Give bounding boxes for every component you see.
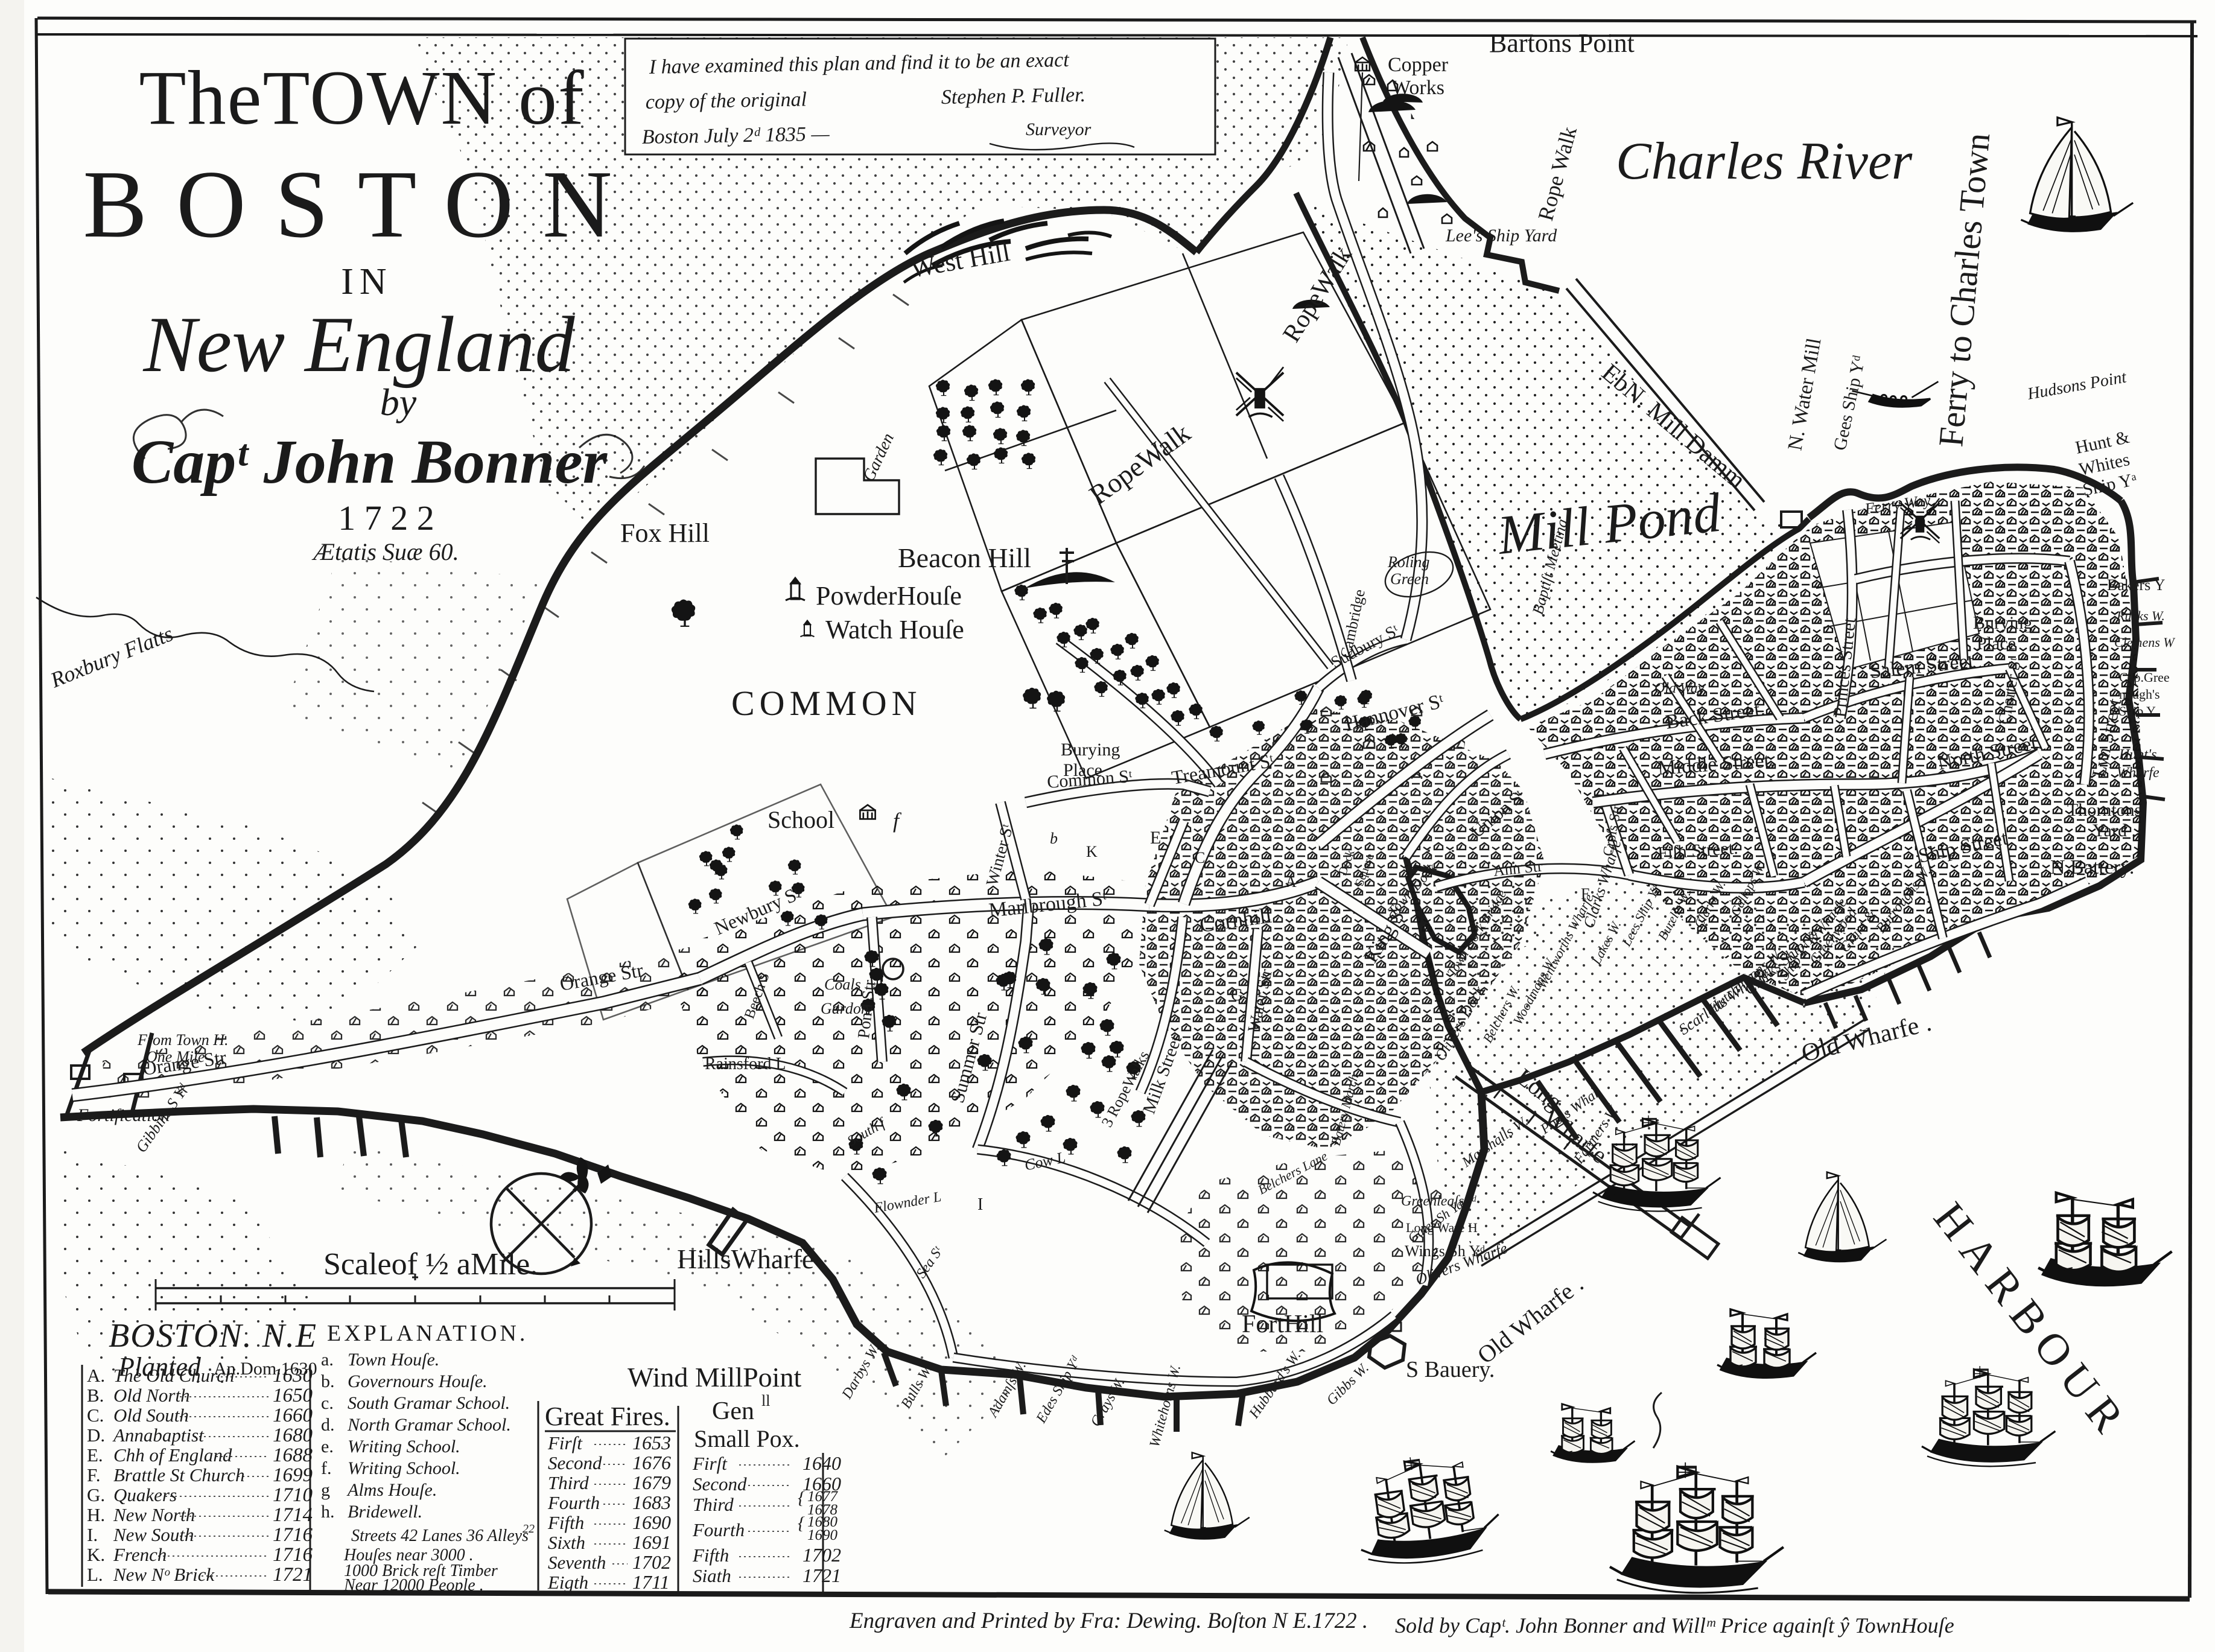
svg-text:The Old Church: The Old Church: [113, 1365, 234, 1386]
svg-text:D.: D.: [87, 1425, 105, 1446]
svg-text:Rucks W.: Rucks W.: [2116, 608, 2165, 623]
svg-text:New North: New North: [113, 1504, 195, 1525]
svg-text:1630: 1630: [273, 1365, 313, 1387]
svg-text:1683: 1683: [632, 1492, 671, 1513]
svg-text:Fourth: Fourth: [692, 1519, 745, 1540]
svg-text:Burying: Burying: [1973, 613, 2032, 633]
svg-text:FortHill: FortHill: [1242, 1310, 1323, 1338]
svg-text:Stephen P. Fuller.: Stephen P. Fuller.: [941, 84, 1085, 109]
svg-text:Alms Houſe.: Alms Houſe.: [346, 1480, 437, 1500]
svg-text:1714: 1714: [273, 1504, 313, 1526]
svg-text:Firſt: Firſt: [547, 1432, 583, 1453]
svg-text:e.: e.: [321, 1437, 334, 1457]
svg-text:Town Houſe.: Town Houſe.: [348, 1350, 439, 1370]
svg-text:COMMON: COMMON: [731, 684, 922, 723]
svg-text:1676: 1676: [632, 1452, 671, 1473]
svg-text:Brattle St Church: Brattle St Church: [113, 1464, 245, 1485]
svg-text:1680: 1680: [273, 1425, 313, 1446]
svg-text:Fifth: Fifth: [547, 1512, 584, 1533]
svg-text:1679: 1679: [632, 1472, 671, 1493]
svg-text:Small Pox.: Small Pox.: [694, 1425, 800, 1452]
svg-text:Governours Houſe.: Governours Houſe.: [348, 1371, 488, 1391]
svg-text:Yard .: Yard .: [2093, 821, 2136, 840]
svg-text:Scaleof ½ aMile.: Scaleof ½ aMile.: [323, 1247, 538, 1282]
svg-text:1690: 1690: [632, 1511, 671, 1533]
svg-text:Copper: Copper: [1388, 54, 1449, 76]
svg-text:Annabaptist: Annabaptist: [112, 1425, 205, 1446]
svg-text:Streets 42 Lanes 36 Alleys: Streets 42 Lanes 36 Alleys: [351, 1527, 529, 1545]
svg-text:Bakers Y: Bakers Y: [2107, 576, 2166, 594]
svg-text:d.: d.: [321, 1415, 335, 1435]
svg-text:IN: IN: [341, 261, 392, 302]
svg-text:Third: Third: [693, 1494, 734, 1515]
svg-text:BOSTON: BOSTON: [83, 150, 641, 258]
svg-text:Clemens W: Clemens W: [2114, 635, 2175, 650]
svg-text:Writing School.: Writing School.: [348, 1437, 460, 1457]
svg-text:Fourth: Fourth: [547, 1492, 600, 1513]
svg-text:Fifth: Fifth: [692, 1545, 729, 1566]
svg-text:Chh of England: Chh of England: [113, 1444, 232, 1466]
svg-text:I.: I.: [87, 1524, 98, 1545]
svg-text:C.: C.: [87, 1405, 104, 1426]
svg-text:F: F: [1581, 885, 1589, 903]
svg-text:Roling: Roling: [1387, 553, 1429, 571]
svg-text:Wharfe: Wharfe: [2117, 765, 2159, 781]
svg-text:F.: F.: [87, 1464, 101, 1485]
svg-text:A.: A.: [87, 1365, 105, 1386]
svg-text:1691: 1691: [632, 1531, 671, 1553]
svg-text:Greenleaſs ʸᵈ: Greenleaſs ʸᵈ: [1401, 1193, 1477, 1209]
svg-text:1710: 1710: [273, 1484, 313, 1506]
svg-text:b.: b.: [321, 1371, 335, 1391]
svg-text:Surveyor: Surveyor: [1026, 119, 1092, 139]
svg-text:{: {: [798, 1488, 805, 1508]
svg-text:1711: 1711: [632, 1571, 670, 1593]
svg-text:Second: Second: [548, 1452, 602, 1473]
svg-text:G: G: [1231, 986, 1243, 1005]
svg-text:Place: Place: [1977, 634, 2016, 653]
svg-text:1721: 1721: [802, 1565, 841, 1586]
svg-text:French: French: [113, 1544, 167, 1565]
svg-text:TheTOWN of: TheTOWN of: [139, 55, 585, 141]
svg-text:g: g: [321, 1480, 330, 1500]
svg-text:Second: Second: [693, 1473, 747, 1495]
svg-text:Beacon Hill: Beacon Hill: [898, 542, 1031, 573]
svg-text:K: K: [1086, 843, 1098, 860]
svg-text:Writing School.: Writing School.: [348, 1458, 460, 1478]
svg-text:nough's: nough's: [2119, 687, 2160, 702]
svg-text:B.: B.: [87, 1385, 104, 1406]
svg-text:Engraven and Printed by Fra: D: Engraven and Printed by Fra: Dewing. Boſ…: [849, 1609, 1368, 1633]
svg-text:1 7 2 2: 1 7 2 2: [338, 498, 434, 538]
svg-text:Wind MillPoint: Wind MillPoint: [628, 1362, 801, 1393]
svg-text:Sixth: Sixth: [548, 1532, 585, 1553]
svg-text:1702: 1702: [632, 1551, 671, 1573]
svg-text:Lee's Ship Yard: Lee's Ship Yard: [1445, 226, 1557, 246]
svg-text:Firſt: Firſt: [692, 1453, 728, 1474]
svg-text:H.: H.: [87, 1504, 105, 1525]
svg-text:K.: K.: [87, 1544, 105, 1565]
svg-text:New Nᵒ Brick: New Nᵒ Brick: [113, 1564, 215, 1585]
svg-text:Fox Hill: Fox Hill: [620, 518, 710, 548]
svg-text:North Gramar School.: North Gramar School.: [347, 1415, 511, 1435]
svg-text:Old North: Old North: [113, 1385, 190, 1406]
svg-text:S Bauery.: S Bauery.: [1406, 1357, 1495, 1382]
svg-text:a.: a.: [321, 1350, 334, 1370]
svg-text:ll: ll: [761, 1392, 770, 1409]
svg-text:Bartons Point: Bartons Point: [1489, 28, 1635, 58]
svg-text:New South: New South: [113, 1524, 194, 1545]
svg-text:1699: 1699: [273, 1464, 313, 1486]
svg-text:1640: 1640: [802, 1452, 841, 1474]
svg-text:1721: 1721: [273, 1564, 313, 1586]
svg-text:Near 12000 People .: Near 12000 People .: [343, 1576, 484, 1595]
svg-text:1688: 1688: [273, 1444, 313, 1466]
svg-text:copy of the original: copy of the original: [645, 88, 807, 113]
svg-text:Third: Third: [548, 1472, 589, 1493]
svg-text:Charles River: Charles River: [1616, 132, 1913, 191]
svg-text:c.: c.: [321, 1393, 334, 1413]
svg-text:Gen: Gen: [712, 1397, 754, 1425]
svg-text:E: E: [1150, 828, 1161, 848]
svg-text:HillsWharfe: HillsWharfe: [677, 1244, 814, 1274]
svg-text:N.Battery.: N.Battery.: [2050, 856, 2134, 878]
svg-text:h.: h.: [321, 1502, 335, 1522]
svg-text:1653: 1653: [632, 1432, 671, 1453]
svg-text:1660: 1660: [273, 1405, 313, 1426]
svg-text:Quakers: Quakers: [113, 1484, 177, 1505]
svg-text:E.: E.: [87, 1444, 103, 1466]
svg-text:BOSTON. N.E: BOSTON. N.E: [109, 1317, 317, 1355]
svg-text:1702: 1702: [802, 1544, 841, 1566]
svg-text:Hunt's: Hunt's: [2118, 747, 2156, 763]
svg-text:Rainsford L: Rainsford L: [705, 1055, 786, 1073]
svg-text:Burying: Burying: [1061, 740, 1120, 760]
svg-text:Capᵗ John Bonner: Capᵗ John Bonner: [132, 427, 608, 497]
svg-text:Boston July 2ᵈ 1835 —: Boston July 2ᵈ 1835 —: [641, 123, 830, 148]
svg-text:Gardon: Gardon: [821, 1000, 869, 1017]
svg-text:I: I: [977, 1195, 983, 1214]
svg-text:PowderHouſe: PowderHouſe: [816, 581, 962, 611]
svg-text:One Mile: One Mile: [146, 1048, 205, 1066]
svg-text:f.: f.: [321, 1458, 332, 1478]
svg-text:Green: Green: [1390, 570, 1429, 588]
svg-text:Thorntons: Thorntons: [2067, 800, 2141, 820]
svg-text:b: b: [1050, 830, 1058, 847]
svg-text:Works: Works: [1391, 77, 1444, 99]
svg-text:22: 22: [523, 1522, 535, 1536]
svg-text:1650: 1650: [273, 1385, 313, 1406]
svg-text:G.: G.: [87, 1484, 105, 1505]
svg-text:EXPLANATION.: EXPLANATION.: [327, 1321, 528, 1346]
svg-text:Eigth: Eigth: [547, 1572, 588, 1593]
svg-text:Seventh: Seventh: [548, 1552, 606, 1573]
svg-text:Siath: Siath: [693, 1565, 731, 1586]
svg-text:Ship Y.: Ship Y.: [2119, 704, 2158, 719]
svg-text:Bridewell.: Bridewell.: [348, 1502, 422, 1522]
svg-text:From Town H.: From Town H.: [137, 1031, 229, 1049]
svg-text:Watch Houſe: Watch Houſe: [825, 615, 964, 644]
svg-text:C: C: [1195, 849, 1205, 866]
svg-text:Sold by Capᵗ. John Bonner and: Sold by Capᵗ. John Bonner and Willᵐ Pric…: [1395, 1613, 1954, 1638]
svg-text:L.: L.: [87, 1564, 103, 1585]
svg-text:Coals: Coals: [824, 976, 861, 993]
svg-text:by: by: [380, 381, 417, 424]
svg-text:New England: New England: [143, 300, 576, 389]
svg-text:{: {: [798, 1513, 805, 1533]
svg-text:Ætatis Suæ 60.: Ætatis Suæ 60.: [311, 538, 459, 565]
svg-text:Old South: Old South: [113, 1405, 189, 1426]
svg-text:1716: 1716: [273, 1524, 313, 1546]
svg-text:A: A: [1285, 873, 1297, 891]
svg-text:School: School: [767, 806, 834, 833]
svg-text:Great Fires.: Great Fires.: [545, 1402, 670, 1431]
svg-text:1716: 1716: [273, 1544, 313, 1566]
svg-text:Old Way: Old Way: [1654, 681, 1705, 696]
svg-text:Cap.Gree: Cap.Gree: [2119, 670, 2170, 685]
svg-text:South Gramar School.: South Gramar School.: [348, 1393, 510, 1413]
